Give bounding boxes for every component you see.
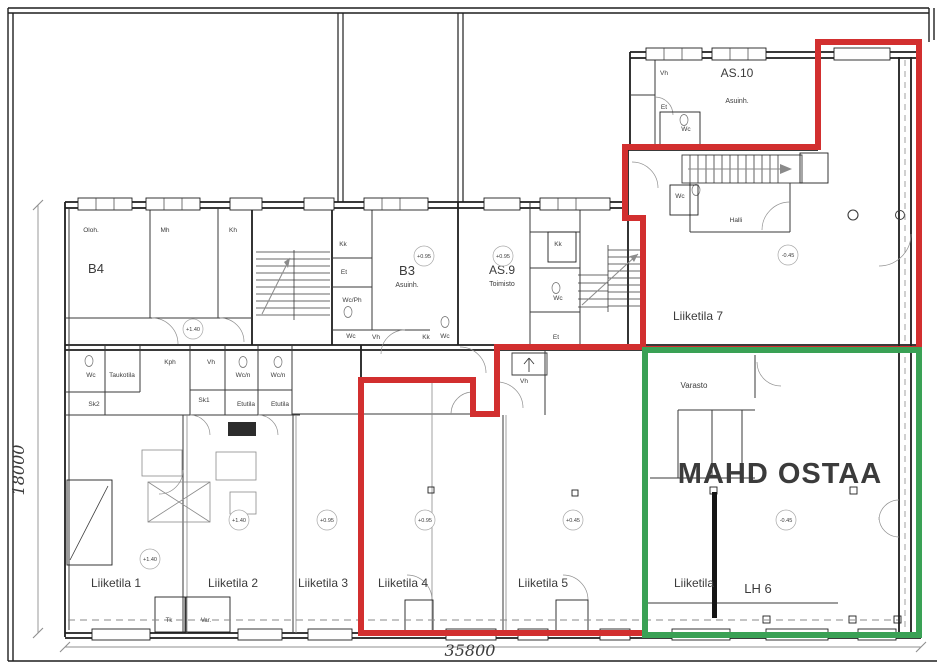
label-small-vh-1: Vh xyxy=(372,334,380,341)
label-room-as10: AS.10 xyxy=(721,66,754,80)
label-small-sk1: Sk1 xyxy=(198,397,210,404)
elevation-value: +0.95 xyxy=(417,254,431,260)
label-small-var: Var. xyxy=(201,618,212,624)
label-small-vh-4: Vh xyxy=(207,359,215,366)
label-dim-left: 18000 xyxy=(9,445,28,496)
label-room-liiketila-5: Liiketila 5 xyxy=(518,576,568,590)
elevation-marker: +1.40 xyxy=(140,549,160,569)
label-room-as10-sub: Asuinh. xyxy=(725,98,748,105)
label-dim-bottom: 35800 xyxy=(445,641,496,660)
counter-block xyxy=(228,422,256,436)
label-small-tk: Tk xyxy=(166,618,174,624)
elevation-marker: +0.45 xyxy=(563,510,583,530)
label-small-et-2: Et xyxy=(553,334,559,341)
label-annotation-mahd-ostaa: MAHD OSTAA xyxy=(678,458,882,490)
round-column xyxy=(848,210,858,220)
label-small-wc-1: Wc xyxy=(346,333,356,340)
label-small-kk-2: Kk xyxy=(422,334,430,341)
elevation-value: +0.45 xyxy=(566,518,580,524)
label-room-lh6: LH 6 xyxy=(744,581,771,596)
wall-end-cap xyxy=(896,211,905,220)
label-small-mh: Mh xyxy=(160,227,169,234)
label-room-liiketila-6: Liiketila xyxy=(674,576,714,590)
label-small-wcn-1: Wc/n xyxy=(236,372,251,379)
label-small-halli: Halli xyxy=(730,217,743,224)
label-room-b3: B3 xyxy=(399,263,415,278)
label-room-liiketila-4: Liiketila 4 xyxy=(378,576,428,590)
elevation-value: +1.40 xyxy=(232,518,246,524)
green-boundary xyxy=(645,350,919,635)
windows-layer xyxy=(78,48,896,640)
elevation-value: +0.95 xyxy=(418,518,432,524)
label-room-liiketila-3: Liiketila 3 xyxy=(298,576,348,590)
elevation-value: +1.40 xyxy=(143,557,157,563)
label-small-vh-2: Vh xyxy=(520,378,528,385)
stairwell-top-right xyxy=(682,155,802,183)
label-small-kk-1: Kk xyxy=(339,241,347,248)
label-room-b3-sub: Asuinh. xyxy=(395,282,418,289)
elevation-value: +0.95 xyxy=(496,254,510,260)
label-small-kk-3: Kk xyxy=(554,241,562,248)
label-small-etutila-1: Etutila xyxy=(237,401,255,408)
elevation-value: -0.45 xyxy=(780,518,793,524)
highlighted-wall-bar xyxy=(712,492,717,618)
top-wall-windows xyxy=(78,48,890,210)
floor-plan-svg: B4B3Asuinh.AS.9ToimistoAS.10Asuinh.Liike… xyxy=(0,0,937,664)
elevation-marker: +0.95 xyxy=(415,510,435,530)
floor-plan-drawing: B4B3Asuinh.AS.9ToimistoAS.10Asuinh.Liike… xyxy=(0,0,937,664)
elevation-marker: +0.95 xyxy=(414,246,434,266)
dimension-lines xyxy=(33,200,926,652)
stairwell-middle xyxy=(578,245,643,312)
walls-layer xyxy=(65,42,921,638)
label-small-wc-5: Wc xyxy=(675,193,685,200)
label-small-wcph: Wc/Ph xyxy=(342,297,362,304)
label-room-b4: B4 xyxy=(88,261,104,276)
label-room-liiketila-7: Liiketila 7 xyxy=(673,309,723,323)
label-small-etutila-2: Etutila xyxy=(271,401,289,408)
label-small-wc-6: Wc xyxy=(86,372,96,379)
label-room-as9-sub: Toimisto xyxy=(489,281,515,288)
label-small-kh: Kh xyxy=(229,227,237,234)
label-small-et-1: Et xyxy=(341,269,347,276)
label-small-wc-3: Wc xyxy=(553,295,563,302)
elevation-marker: +0.95 xyxy=(493,246,513,266)
elevation-marker: +0.95 xyxy=(317,510,337,530)
label-room-varasto: Varasto xyxy=(681,381,709,390)
elevation-marker: +1.40 xyxy=(183,319,203,339)
elevation-value: -0.45 xyxy=(782,253,795,259)
label-small-wcn-2: Wc/n xyxy=(271,372,286,379)
elevation-marker: +1.40 xyxy=(229,510,249,530)
elevation-value: +0.95 xyxy=(320,518,334,524)
label-small-taukotila: Taukotila xyxy=(109,372,135,379)
label-room-liiketila-1: Liiketila 1 xyxy=(91,576,141,590)
entry-arrow-box xyxy=(512,353,547,375)
label-small-wc-4: Wc xyxy=(681,126,691,133)
label-small-kph: Kph xyxy=(164,359,176,366)
label-room-liiketila-2: Liiketila 2 xyxy=(208,576,258,590)
label-small-oloh: Oloh. xyxy=(83,227,99,234)
stairwell-top-left xyxy=(256,250,330,320)
elevation-marker: -0.45 xyxy=(776,510,796,530)
label-small-sk2: Sk2 xyxy=(88,401,100,408)
elevation-value: +1.40 xyxy=(186,327,200,333)
label-small-wc-2: Wc xyxy=(440,333,450,340)
label-small-vh-3: Vh xyxy=(660,70,668,77)
elevation-marker: -0.45 xyxy=(778,245,798,265)
label-small-et-3: Et xyxy=(661,104,667,111)
